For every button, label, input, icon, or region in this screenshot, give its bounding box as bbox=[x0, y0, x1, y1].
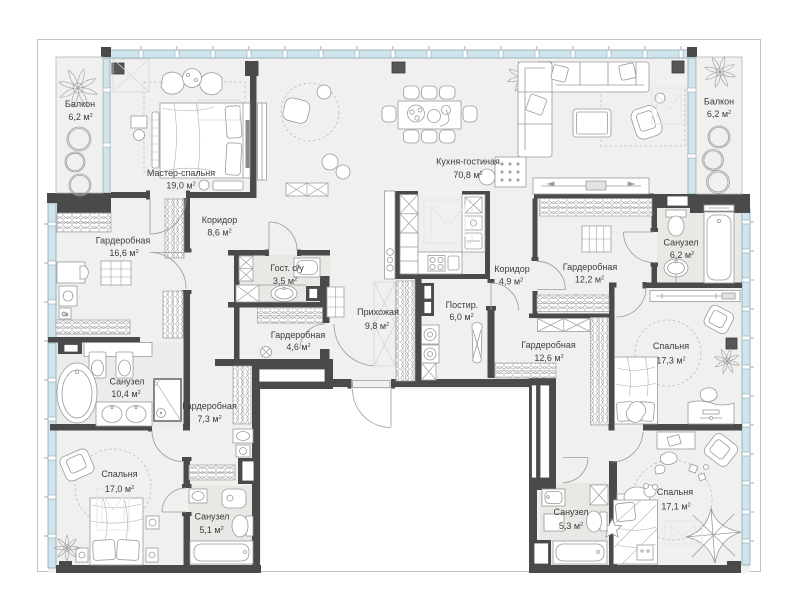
svg-text:Гардеробная: Гардеробная bbox=[521, 340, 576, 350]
svg-text:Постир.: Постир. bbox=[446, 300, 479, 310]
svg-text:Спальня: Спальня bbox=[101, 469, 137, 479]
svg-text:Прихожая: Прихожая bbox=[357, 307, 399, 317]
svg-text:Гардеробная: Гардеробная bbox=[563, 262, 618, 272]
svg-text:Гост. с/у: Гост. с/у bbox=[270, 263, 304, 273]
svg-text:4,9 м2: 4,9 м2 bbox=[499, 277, 523, 287]
svg-text:17,0 м2: 17,0 м2 bbox=[105, 484, 134, 494]
svg-text:Спальня: Спальня bbox=[657, 487, 693, 497]
svg-text:12,6 м2: 12,6 м2 bbox=[534, 353, 563, 363]
svg-text:Гардеробная: Гардеробная bbox=[271, 330, 326, 340]
svg-text:3,5 м2: 3,5 м2 bbox=[273, 276, 297, 286]
svg-text:70,8 м2: 70,8 м2 bbox=[453, 170, 482, 180]
svg-text:17,1 м2: 17,1 м2 bbox=[661, 502, 690, 512]
svg-text:7,3 м2: 7,3 м2 bbox=[197, 414, 221, 424]
svg-text:16,6 м2: 16,6 м2 bbox=[109, 248, 138, 258]
svg-text:6,2 м2: 6,2 м2 bbox=[670, 250, 694, 260]
svg-text:10,4 м2: 10,4 м2 bbox=[111, 389, 140, 399]
svg-text:8,6 м2: 8,6 м2 bbox=[207, 228, 231, 238]
svg-text:Коридор: Коридор bbox=[494, 264, 530, 274]
svg-text:Св: Св bbox=[62, 312, 69, 318]
svg-text:19,0 м2: 19,0 м2 bbox=[166, 181, 195, 191]
svg-text:6,2 м2: 6,2 м2 bbox=[707, 109, 731, 119]
svg-text:6,0 м2: 6,0 м2 bbox=[449, 312, 473, 322]
svg-text:6,2 м2: 6,2 м2 bbox=[68, 112, 92, 122]
svg-text:Мастер-спальня: Мастер-спальня bbox=[147, 168, 215, 178]
svg-text:5,3 м2: 5,3 м2 bbox=[559, 521, 583, 531]
svg-text:Гардеробная: Гардеробная bbox=[182, 401, 237, 411]
svg-text:Кухня-гостиная: Кухня-гостиная bbox=[436, 157, 500, 167]
svg-text:Гардеробная: Гардеробная bbox=[96, 236, 151, 246]
svg-text:Коридор: Коридор bbox=[202, 215, 238, 225]
svg-text:Санузел: Санузел bbox=[663, 238, 698, 248]
svg-text:Санузел: Санузел bbox=[553, 507, 588, 517]
svg-text:5,1 м2: 5,1 м2 bbox=[199, 525, 223, 535]
svg-text:12,2 м2: 12,2 м2 bbox=[575, 275, 604, 285]
svg-text:Санузел: Санузел bbox=[109, 377, 144, 387]
svg-text:Балкон: Балкон bbox=[65, 99, 95, 109]
svg-text:Спальня: Спальня bbox=[653, 341, 689, 351]
svg-text:4,6 м2: 4,6 м2 bbox=[286, 342, 310, 352]
svg-text:9,8 м2: 9,8 м2 bbox=[365, 321, 389, 331]
svg-text:Балкон: Балкон bbox=[704, 97, 734, 107]
svg-text:Санузел: Санузел bbox=[194, 512, 229, 522]
svg-text:17,3 м2: 17,3 м2 bbox=[656, 356, 685, 366]
